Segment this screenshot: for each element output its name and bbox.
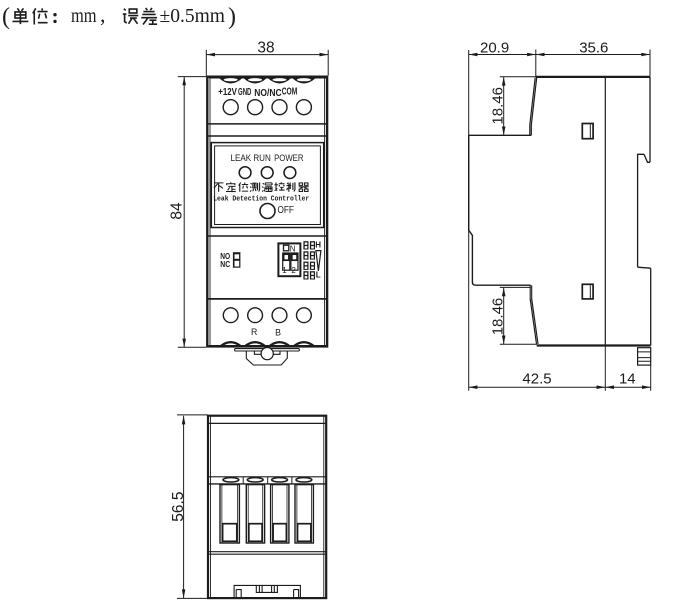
svg-text:38: 38 [257,40,274,57]
svg-text:35.6: 35.6 [579,39,608,56]
svg-text:1: 1 [282,266,287,275]
svg-text:(: ( [2,4,10,30]
svg-text:20.9: 20.9 [480,39,509,56]
svg-text:N: N [290,245,296,254]
svg-text:H: H [315,241,321,250]
svg-text:mm: mm [71,5,97,27]
svg-text:RUN: RUN [253,153,271,163]
svg-text:OFF: OFF [278,204,294,216]
svg-text:LEAK: LEAK [230,153,251,163]
svg-text:42.5: 42.5 [522,370,551,387]
svg-text:POWER: POWER [274,153,303,163]
svg-text:±0.5mm: ±0.5mm [160,5,226,27]
svg-text:,: , [100,2,106,27]
svg-text:NC: NC [220,260,230,269]
svg-text:GND: GND [238,87,251,98]
svg-text:Leak Detection Controller: Leak Detection Controller [213,196,309,204]
svg-text:R: R [251,327,257,337]
svg-text:L: L [316,271,321,280]
svg-text:): ) [228,4,236,30]
svg-text:56.5: 56.5 [170,492,187,522]
svg-text:+12V: +12V [218,87,237,98]
svg-text:NO/NC: NO/NC [254,88,281,99]
svg-text:18.46: 18.46 [489,87,506,125]
svg-text:2: 2 [291,266,296,275]
svg-text:18.46: 18.46 [489,298,506,336]
svg-text:14: 14 [619,371,636,388]
svg-text:B: B [275,328,281,338]
svg-text:COM: COM [282,87,298,98]
svg-text:84: 84 [169,202,186,220]
